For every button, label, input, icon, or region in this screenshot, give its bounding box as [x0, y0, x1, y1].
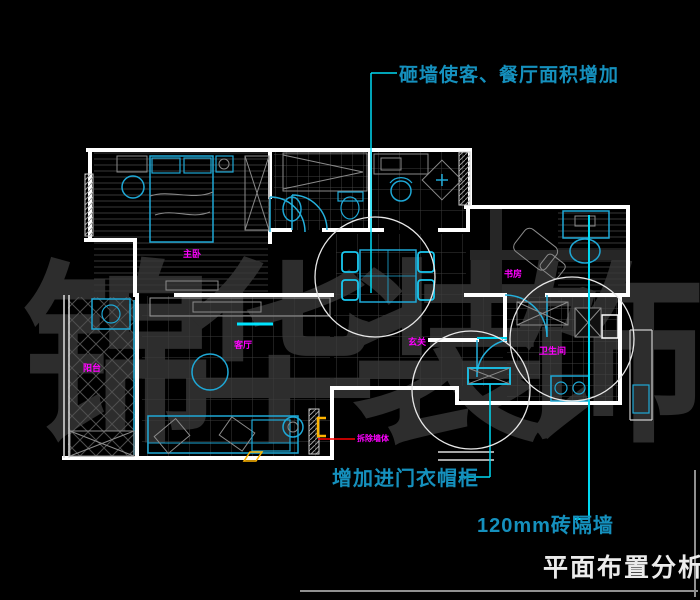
room-label-master-bedroom: 主卧 — [183, 250, 201, 260]
annotation-wall-note: 拆除墙体 — [357, 433, 389, 444]
room-label-living-room: 客厅 — [234, 341, 252, 351]
annotation-brick-partition: 120mm砖隔墙 — [477, 509, 614, 538]
room-label-bathroom: 卫生间 — [539, 347, 566, 357]
floorplan-sheet: 锦 华 装 饰 — [0, 0, 700, 600]
sheet-title: 平面布置分析 — [543, 548, 700, 584]
room-label-balcony: 阳台 — [83, 364, 101, 374]
lounge-chair — [511, 226, 560, 273]
annotation-entry-wardrobe: 增加进门衣帽柜 — [332, 462, 479, 491]
room-label-hallway: 玄关 — [408, 338, 426, 348]
annotation-demolish-wall: 砸墙使客、餐厅面积增加 — [399, 60, 619, 87]
room-label-study: 书房 — [504, 270, 522, 280]
